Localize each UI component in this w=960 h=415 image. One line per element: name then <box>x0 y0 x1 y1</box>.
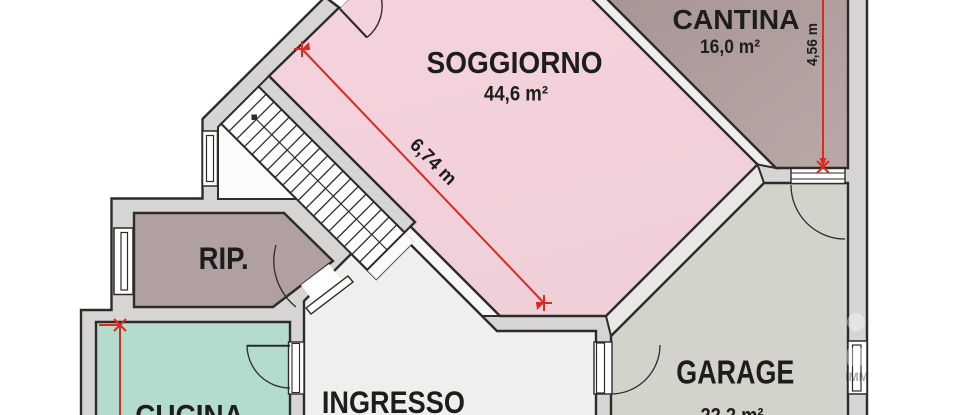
svg-text:RIP.: RIP. <box>199 240 249 276</box>
svg-text:INGRESSO: INGRESSO <box>322 385 465 415</box>
svg-text:16,0 m²: 16,0 m² <box>700 37 760 58</box>
svg-text:SOGGIORNO: SOGGIORNO <box>427 47 603 80</box>
svg-text:22,2 m²: 22,2 m² <box>701 405 764 415</box>
svg-text:CANTINA: CANTINA <box>673 4 800 35</box>
svg-text:44,6 m²: 44,6 m² <box>484 83 548 106</box>
svg-text:IMM: IMM <box>845 370 868 384</box>
svg-text:GARAGE: GARAGE <box>676 354 794 391</box>
svg-text:4,56 m: 4,56 m <box>804 23 821 66</box>
svg-text:CUCINA: CUCINA <box>135 398 244 415</box>
